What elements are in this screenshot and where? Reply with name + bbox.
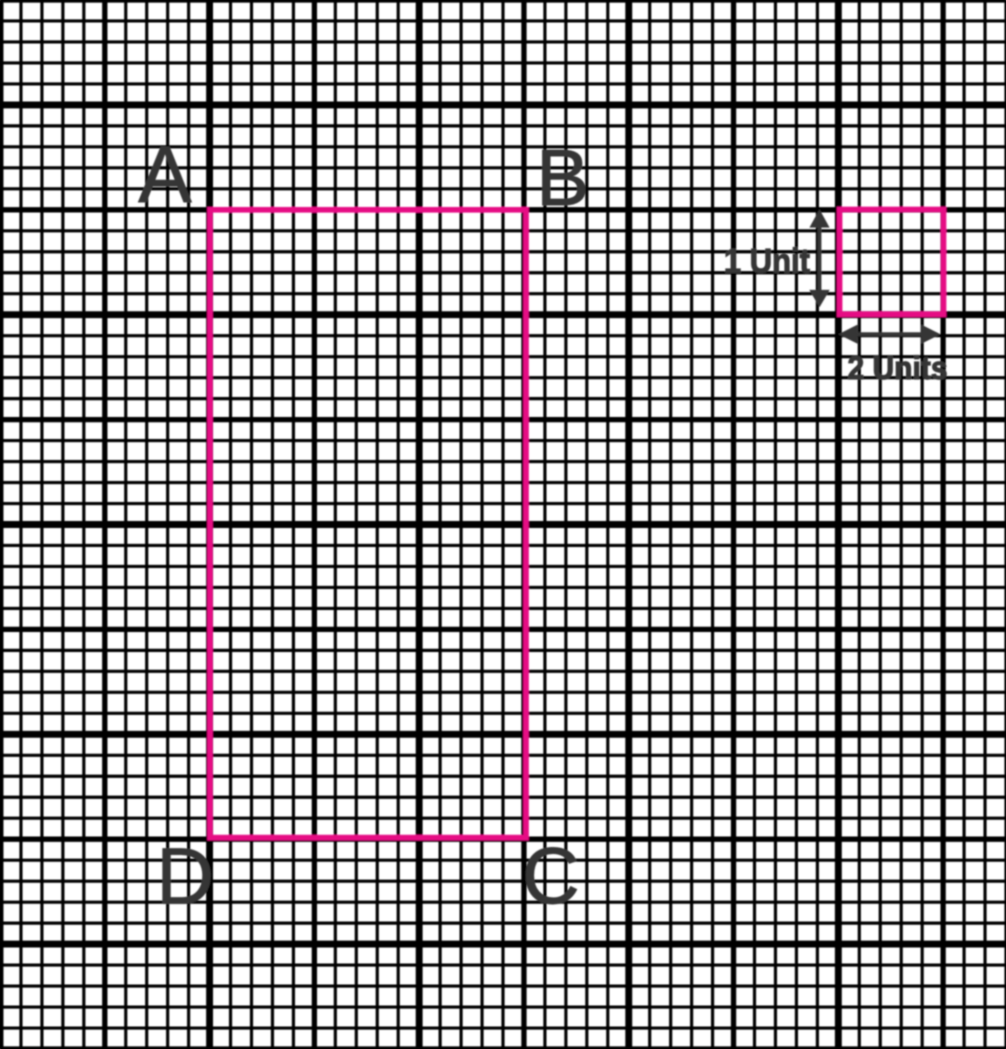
svg-text:1 Unit: 1 Unit: [724, 243, 810, 281]
svg-text:B: B: [536, 133, 589, 222]
svg-text:D: D: [156, 831, 214, 920]
svg-text:C: C: [522, 831, 580, 920]
svg-text:A: A: [138, 130, 192, 219]
svg-text:2 Units: 2 Units: [848, 350, 948, 386]
